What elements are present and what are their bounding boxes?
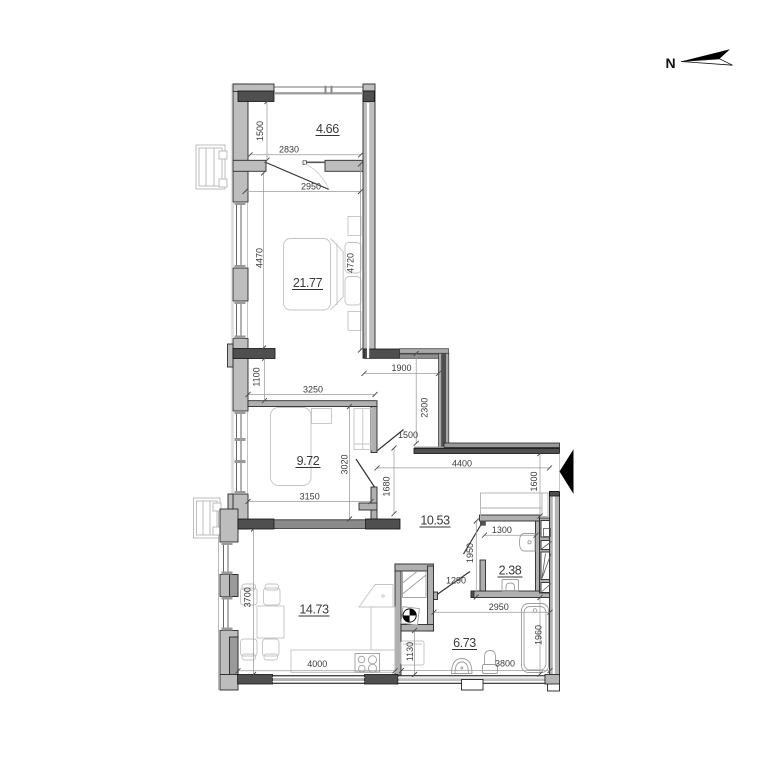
svg-text:2950: 2950 (301, 181, 321, 191)
svg-text:1500: 1500 (255, 121, 265, 141)
svg-text:1680: 1680 (381, 476, 391, 496)
svg-text:6.73: 6.73 (453, 636, 476, 650)
svg-text:2830: 2830 (279, 145, 299, 155)
svg-text:4.66: 4.66 (316, 122, 339, 136)
svg-text:3800: 3800 (495, 658, 515, 668)
svg-text:4720: 4720 (345, 253, 355, 273)
svg-text:N: N (665, 55, 675, 71)
svg-text:1130: 1130 (405, 642, 415, 661)
svg-text:10.53: 10.53 (420, 514, 450, 528)
svg-text:1600: 1600 (529, 471, 539, 491)
svg-text:21.77: 21.77 (293, 276, 323, 290)
svg-text:3150: 3150 (300, 492, 320, 502)
svg-text:2.38: 2.38 (499, 564, 522, 578)
svg-text:3250: 3250 (303, 385, 323, 395)
svg-text:1950: 1950 (465, 543, 475, 563)
svg-text:4000: 4000 (307, 659, 327, 669)
svg-text:1100: 1100 (252, 367, 262, 386)
svg-text:1900: 1900 (391, 363, 411, 373)
svg-text:1290: 1290 (446, 575, 466, 585)
svg-text:4470: 4470 (254, 248, 264, 268)
svg-text:3700: 3700 (243, 587, 253, 607)
svg-text:1300: 1300 (492, 525, 512, 535)
svg-text:4400: 4400 (452, 459, 472, 469)
svg-text:1500: 1500 (398, 430, 418, 440)
svg-text:2300: 2300 (419, 398, 429, 418)
svg-text:2950: 2950 (489, 602, 509, 612)
svg-text:14.73: 14.73 (299, 603, 329, 617)
svg-text:1960: 1960 (533, 625, 543, 645)
svg-text:3020: 3020 (339, 454, 349, 474)
svg-text:9.72: 9.72 (297, 454, 320, 468)
